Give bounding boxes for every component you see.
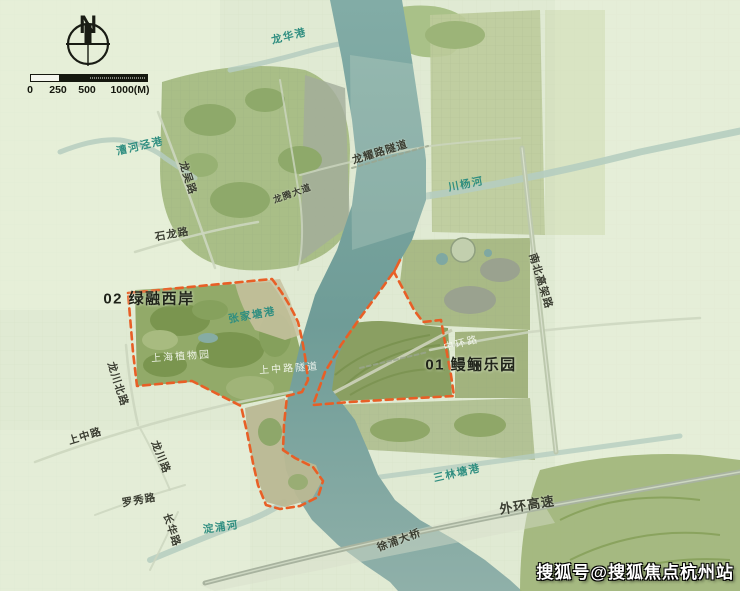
scale-segment-light	[31, 75, 59, 81]
scale-bar-segments	[30, 74, 148, 82]
water-label-dianpu-he: 淀浦河	[202, 517, 240, 537]
road-label-shilong-lu: 石龙路	[154, 224, 191, 245]
road-label-luoxiu-lu: 罗秀路	[121, 490, 158, 511]
road-label-changhua-lu: 长华路	[160, 511, 185, 548]
place-label-shangzhong-lu-tunnel: 上中路隧道	[259, 357, 320, 376]
scale-tick-1000(M): 1000(M)	[110, 84, 149, 96]
scale-tick-500: 500	[78, 84, 96, 96]
road-label-waihuan-expressway: 外环高速	[498, 490, 556, 518]
map-screenshot: 龙华港漕河泾港张家塘港川杨河三林塘港淀浦河龙吴路石龙路龙腾大道龙耀路隧道南北高架…	[0, 0, 740, 591]
road-label-longyao-lu-tunnel: 龙耀路隧道	[350, 136, 409, 167]
water-label-zhangjiatang-gang: 张家塘港	[227, 303, 277, 326]
water-label-sanlintang-gang: 三林塘港	[432, 460, 482, 485]
road-label-xupu-bridge: 徐浦大桥	[375, 525, 423, 555]
scale-tick-250: 250	[49, 84, 67, 96]
water-label-caohejing-gang: 漕河泾港	[115, 133, 165, 158]
place-label-shanghai-botanical-garden: 上海植物园	[151, 345, 212, 364]
road-label-nanbei-elevated-rd: 南北高架路	[525, 251, 556, 310]
road-label-shangzhong-lu: 上中路	[66, 424, 103, 448]
water-label-chuanyang-he: 川杨河	[447, 173, 485, 195]
road-label-longteng-dadao: 龙腾大道	[271, 180, 313, 206]
place-label-zhonghuan-lu: 中环路	[442, 330, 481, 353]
scale-tick-0: 0	[27, 84, 33, 96]
road-label-longchuan-north-lu: 龙川北路	[104, 360, 132, 408]
watermark: 搜狐号@搜狐焦点杭州站	[536, 558, 734, 583]
scale-segment-dark	[59, 75, 88, 81]
road-label-longchuan-lu: 龙川路	[148, 438, 175, 476]
scale-segment-dotted	[88, 75, 147, 81]
region-label-02-lvrong-west-bank: 02 绿融西岸	[103, 288, 194, 309]
region-label-01-manli-park: 01 鳗鲡乐园	[425, 354, 516, 375]
scale-bar: 02505001000(M)	[30, 74, 148, 98]
compass-rose-icon	[60, 12, 116, 72]
scale-bar-ticks: 02505001000(M)	[30, 84, 148, 98]
water-label-longhua-gang: 龙华港	[270, 24, 309, 47]
road-label-longwu-lu: 龙吴路	[176, 159, 201, 196]
